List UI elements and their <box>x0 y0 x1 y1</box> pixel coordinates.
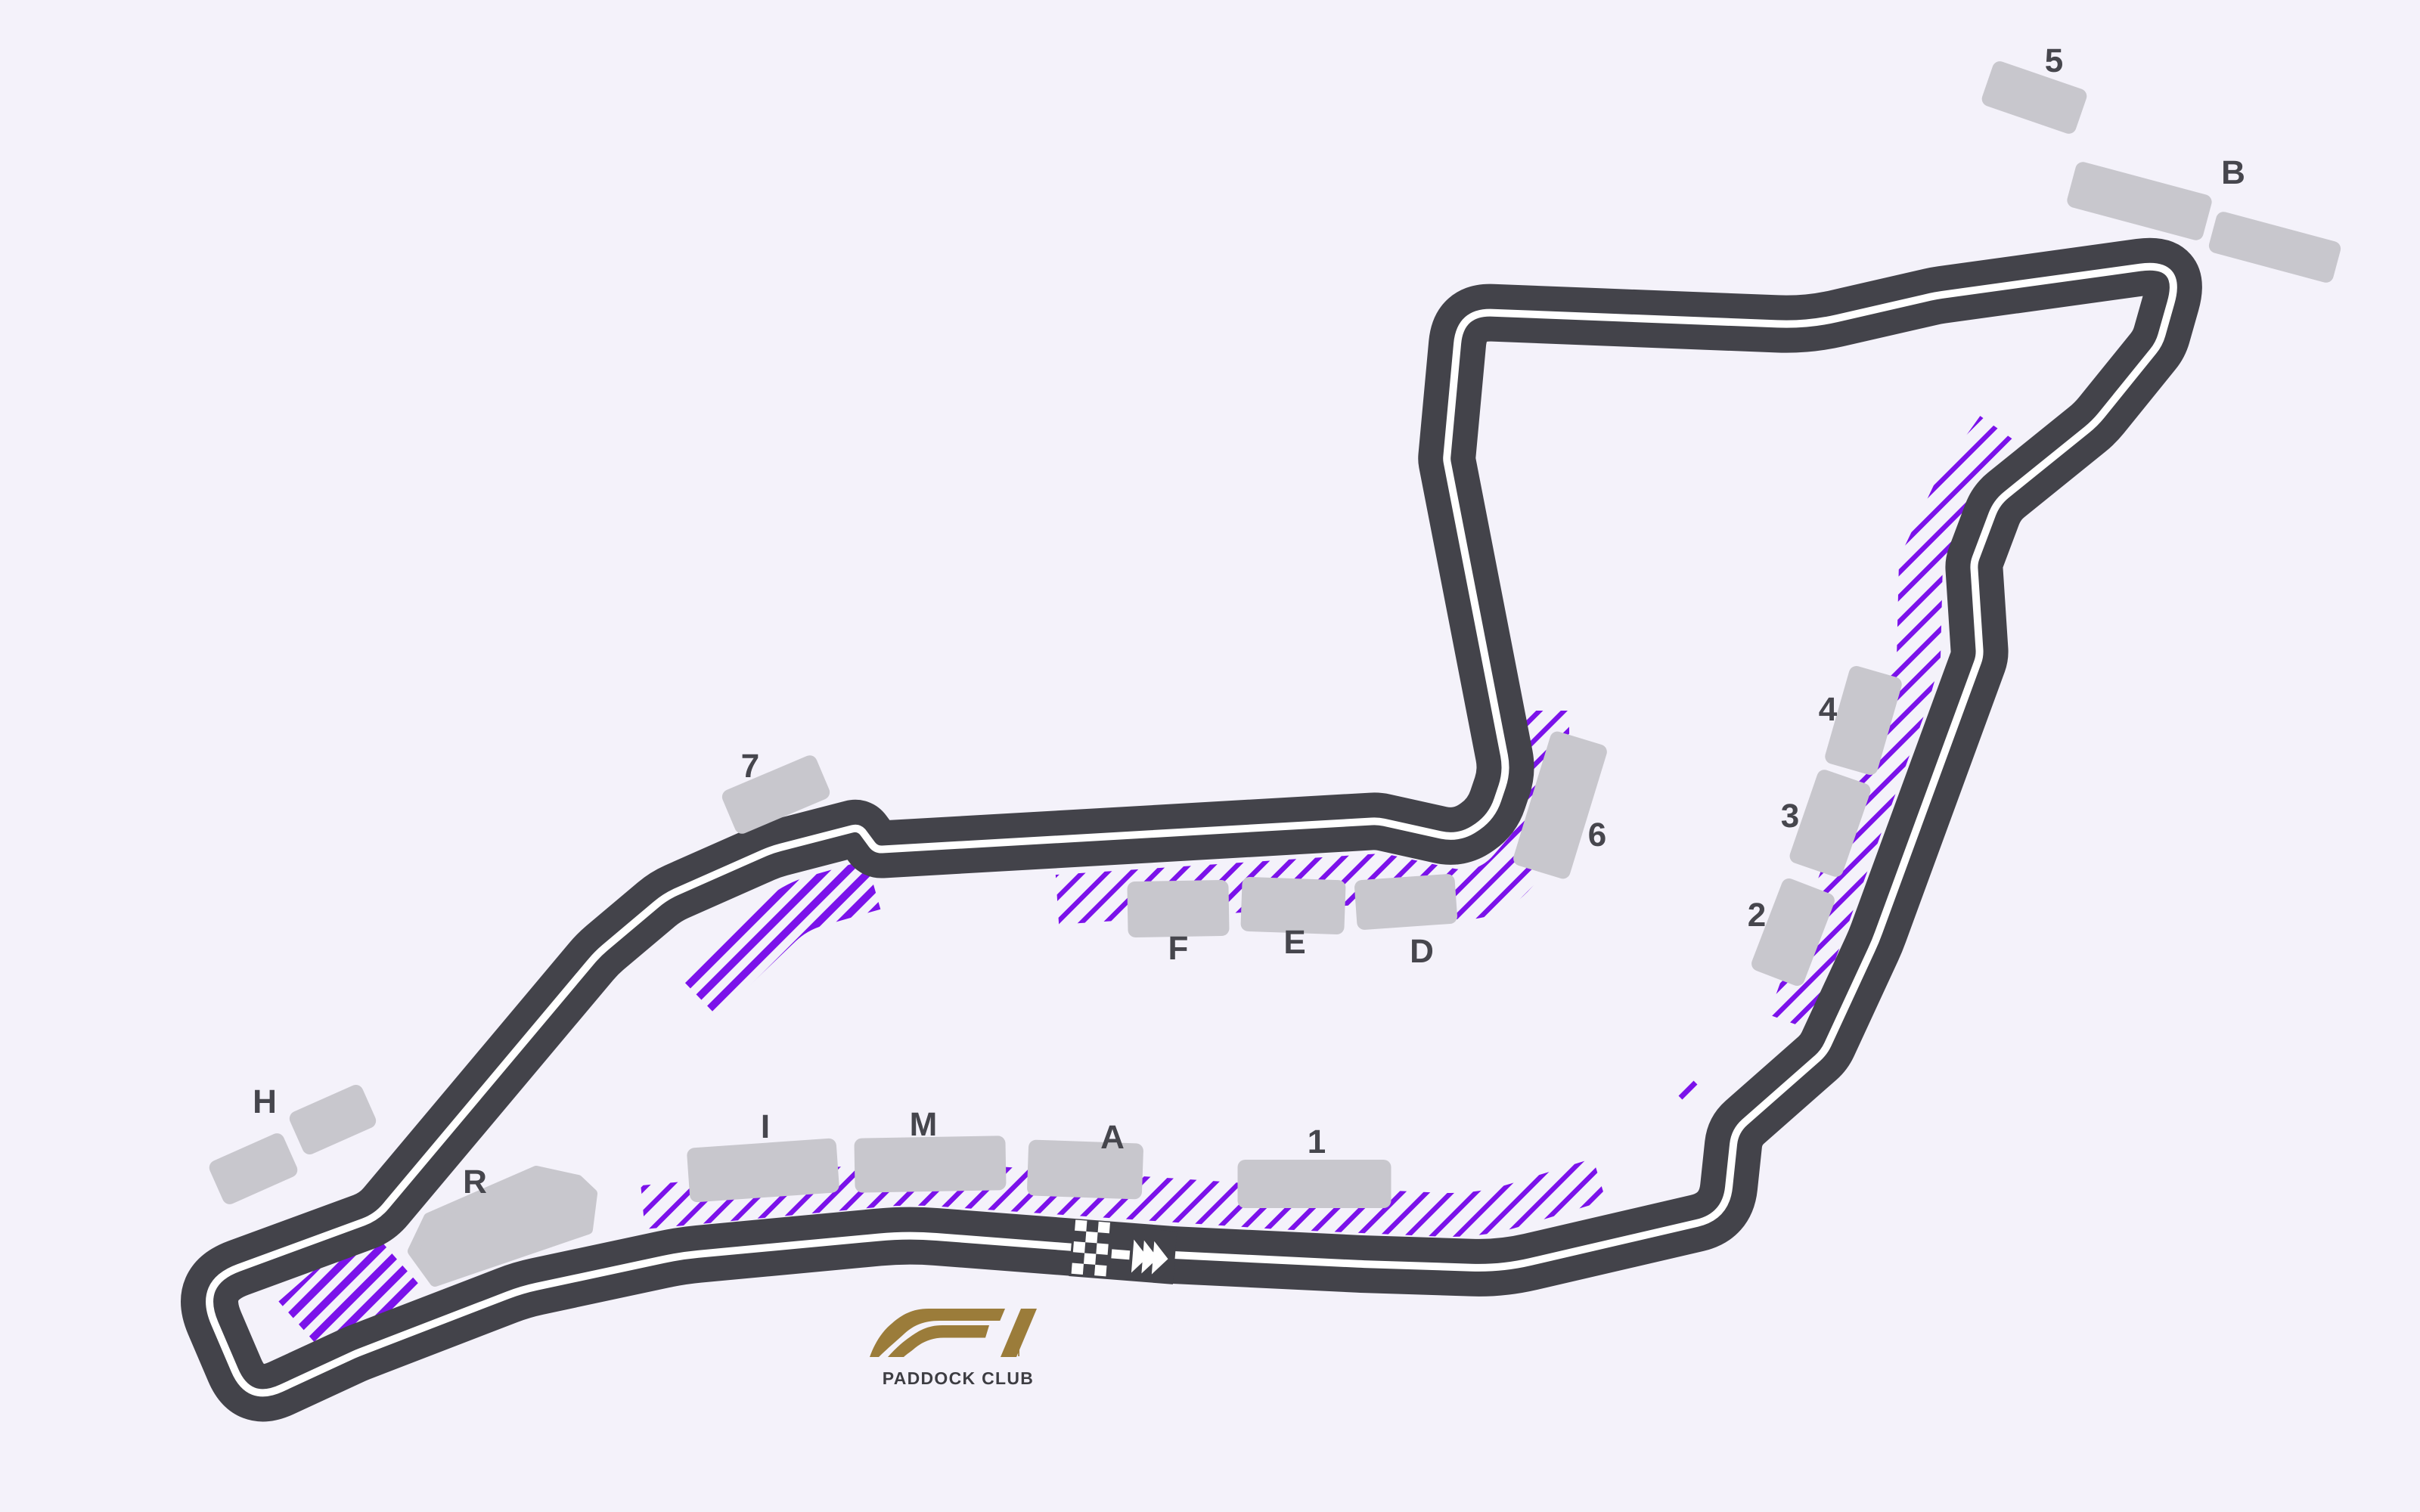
svg-text:E: E <box>1283 924 1305 961</box>
svg-text:3: 3 <box>1781 798 1799 835</box>
svg-text:1: 1 <box>1308 1123 1326 1160</box>
svg-text:A: A <box>1100 1119 1125 1156</box>
svg-text:TM: TM <box>1006 1347 1020 1359</box>
svg-text:PADDOCK CLUB: PADDOCK CLUB <box>883 1368 1034 1388</box>
svg-text:D: D <box>1410 933 1434 970</box>
svg-text:5: 5 <box>2045 42 2063 79</box>
svg-text:6: 6 <box>1588 816 1606 854</box>
svg-text:4: 4 <box>1819 691 1838 728</box>
svg-text:M: M <box>910 1106 938 1143</box>
svg-text:2: 2 <box>1748 897 1766 934</box>
svg-text:F: F <box>1168 930 1189 967</box>
svg-text:I: I <box>761 1108 770 1145</box>
svg-text:R: R <box>463 1163 487 1201</box>
svg-text:7: 7 <box>741 748 759 785</box>
svg-text:H: H <box>253 1083 277 1120</box>
svg-text:B: B <box>2221 154 2245 191</box>
